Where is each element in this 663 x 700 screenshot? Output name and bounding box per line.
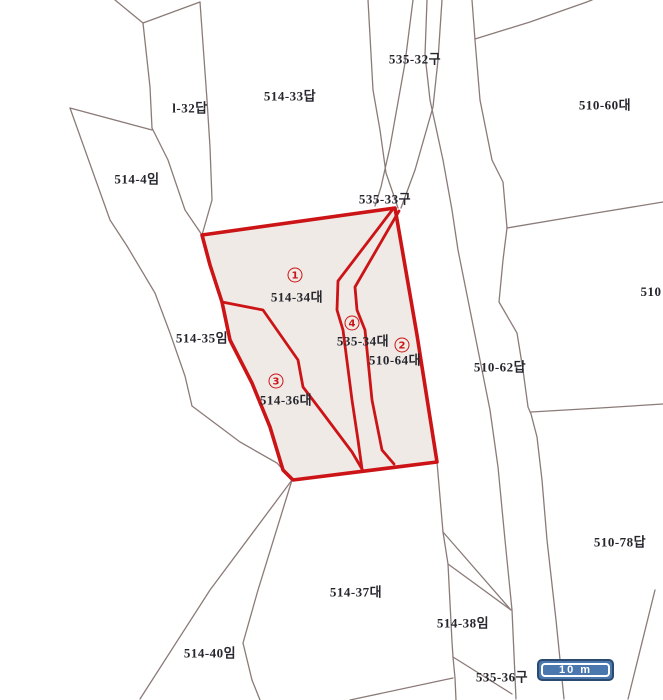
marker-circled-1: 1: [288, 268, 303, 283]
parcel-label-510-clipped: 510: [641, 284, 662, 300]
parcel-label-514-36: 514-36대: [260, 390, 312, 409]
parcel-label-535-32: 535-32구: [389, 49, 441, 68]
parcel-label-514-37: 514-37대: [330, 582, 382, 601]
parcel-label-514-40: 514-40임: [184, 643, 236, 662]
parcel-label-514-34: 514-34대: [271, 287, 323, 306]
scale-bar: 10 m: [537, 659, 614, 681]
parcel-label-l-32: l-32답: [172, 98, 207, 117]
marker-circled-2: 2: [395, 338, 410, 353]
parcel-label-514-35: 514-35임: [176, 328, 228, 347]
parcel-label-514-4: 514-4임: [114, 169, 159, 188]
parcel-label-510-62: 510-62답: [474, 357, 526, 376]
scale-bar-frame: 10 m: [541, 663, 610, 677]
marker-circled-4: 4: [345, 316, 360, 331]
scale-bar-label: 10 m: [559, 664, 592, 676]
parcel-label-510-64: 510-64대: [369, 350, 421, 369]
parcel-label-510-60: 510-60대: [579, 95, 631, 114]
parcel-label-535-33: 535-33구: [359, 189, 411, 208]
parcel-label-510-78: 510-78답: [594, 532, 646, 551]
marker-circled-3: 3: [269, 374, 284, 389]
parcel-label-535-34: 535-34대: [337, 331, 389, 350]
cadastral-map-canvas[interactable]: l-32답 514-33답 535-32구 510-60대 514-4임 535…: [0, 0, 663, 700]
parcel-label-535-36: 535-36구: [476, 667, 528, 686]
parcel-label-514-33: 514-33답: [264, 86, 316, 105]
parcel-label-514-38: 514-38임: [437, 613, 489, 632]
